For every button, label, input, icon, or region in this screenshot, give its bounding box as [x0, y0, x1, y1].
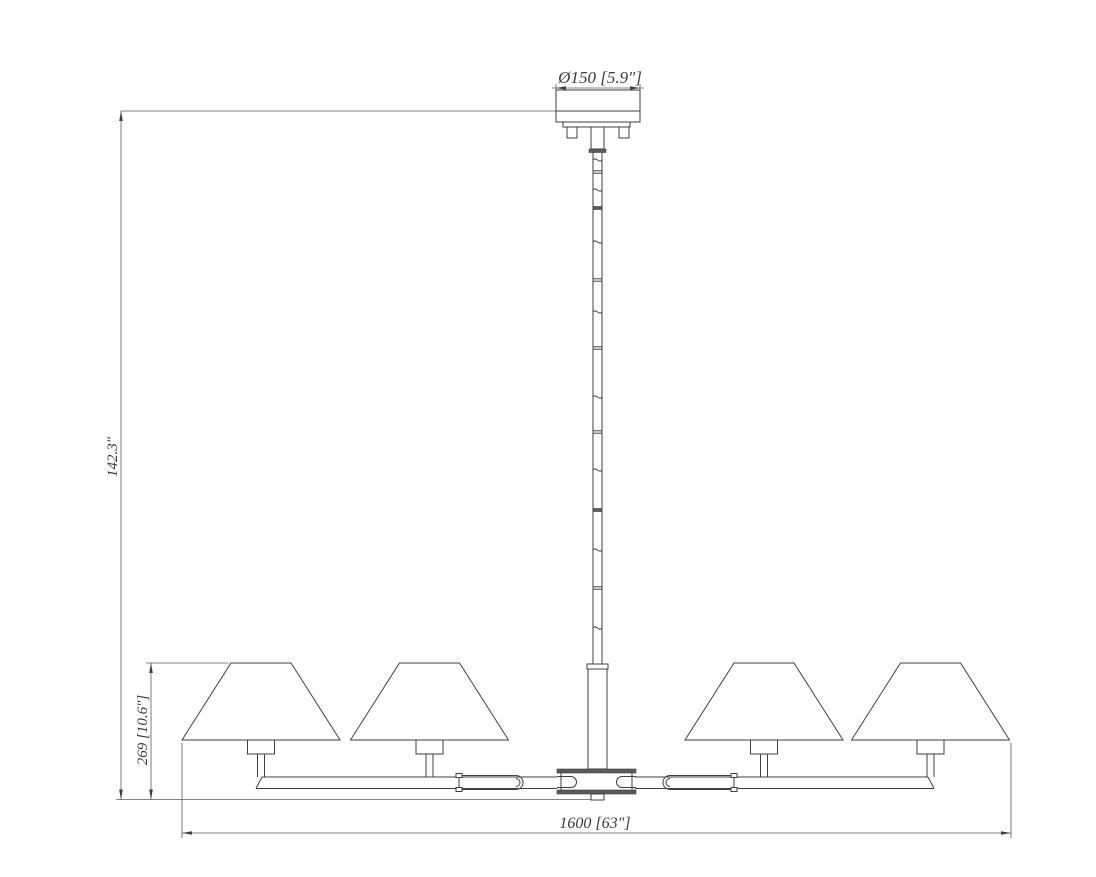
- drawing-page: 142.3" 269 [10.6"] 1600 [63"] Ø150 [5.9"…: [0, 0, 1096, 877]
- hub-top-flange: [557, 769, 636, 773]
- center-hub: [557, 769, 636, 800]
- rod-break-marks: [593, 159, 602, 629]
- stem-top-fitting: [591, 127, 604, 149]
- hub-bottom-flange: [557, 790, 636, 794]
- socket-cup-4: [917, 740, 944, 754]
- canopy-mount-tab-left: [567, 127, 577, 138]
- hub-right-slot: [617, 777, 637, 788]
- shade-1: [182, 663, 340, 740]
- dim-overall-width-label: 1600 [63"]: [559, 815, 630, 832]
- hub-bottom-stub: [591, 794, 604, 800]
- hub-left-slot: [557, 777, 577, 788]
- socket-cup-2: [416, 740, 443, 754]
- left-arm: [256, 777, 557, 789]
- shade-3: [685, 663, 843, 740]
- dim-body-height-label: 269 [10.6"]: [135, 695, 151, 766]
- canopy-mount-tab-right: [619, 127, 629, 138]
- lamp-4: [852, 663, 1010, 777]
- rod-lower-tube: [588, 669, 607, 769]
- suspension-rod: [587, 153, 608, 770]
- rod-collar: [587, 664, 608, 669]
- lamp-2: [351, 663, 509, 777]
- dim-overall-height-label: 142.3": [105, 436, 121, 477]
- shade-4: [852, 663, 1010, 740]
- socket-cup-3: [751, 740, 778, 754]
- dim-canopy-diameter-group: Ø150 [5.9"]: [552, 68, 644, 91]
- right-arm: [635, 777, 934, 789]
- shade-2: [351, 663, 509, 740]
- lamp-1: [182, 663, 340, 777]
- drawing-canvas: 142.3" 269 [10.6"] 1600 [63"] Ø150 [5.9"…: [0, 0, 1096, 877]
- lamp-3: [685, 663, 843, 777]
- socket-cup-1: [248, 740, 275, 754]
- dim-canopy-diameter-label: Ø150 [5.9"]: [557, 68, 642, 87]
- rod-couplings: [593, 171, 602, 589]
- dim-overall-height-group: 142.3": [105, 111, 556, 800]
- ceiling-canopy: [556, 90, 640, 153]
